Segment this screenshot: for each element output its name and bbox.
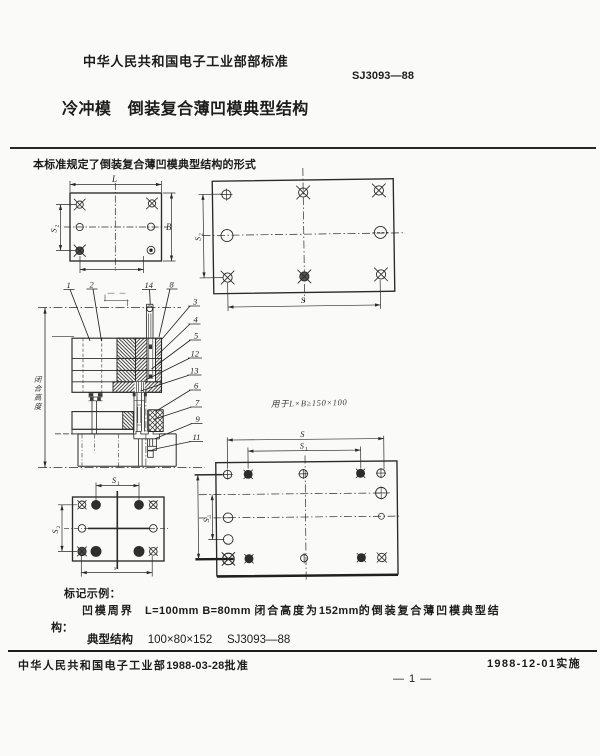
svg-text:2: 2: [90, 280, 95, 290]
svg-text:2: 2: [55, 225, 61, 228]
svg-text:S: S: [112, 476, 116, 485]
svg-text:1: 1: [305, 446, 308, 452]
svg-text:高: 高: [34, 393, 43, 402]
svg-text:S: S: [301, 295, 306, 305]
svg-text:S: S: [202, 518, 211, 522]
svg-text:11: 11: [193, 432, 201, 442]
svg-text:2: 2: [198, 233, 204, 236]
svg-text:1: 1: [67, 280, 71, 290]
svg-text:1: 1: [207, 514, 213, 517]
svg-text:S: S: [194, 237, 203, 241]
svg-text:2: 2: [56, 526, 62, 529]
svg-text:6: 6: [194, 381, 199, 391]
svg-text:9: 9: [196, 414, 201, 424]
svg-text:1: 1: [117, 481, 120, 487]
svg-text:13: 13: [190, 366, 199, 376]
svg-text:用于L×B≥150×100: 用于L×B≥150×100: [271, 397, 348, 409]
svg-text:4: 4: [194, 315, 199, 325]
svg-text:闭: 闭: [34, 375, 43, 384]
svg-text:B: B: [166, 222, 172, 232]
svg-text:S: S: [51, 530, 60, 534]
svg-text:合: 合: [34, 384, 43, 393]
svg-text:14: 14: [145, 280, 154, 290]
svg-text:5: 5: [194, 331, 198, 341]
svg-text:7: 7: [195, 398, 200, 408]
svg-text:12: 12: [191, 349, 200, 359]
svg-text:8: 8: [170, 280, 175, 290]
svg-text:S: S: [300, 442, 304, 451]
svg-text:S: S: [300, 429, 305, 439]
svg-text:S: S: [50, 229, 59, 233]
svg-text:3: 3: [192, 297, 197, 307]
svg-text:度: 度: [34, 402, 43, 411]
svg-text:L: L: [111, 174, 117, 184]
